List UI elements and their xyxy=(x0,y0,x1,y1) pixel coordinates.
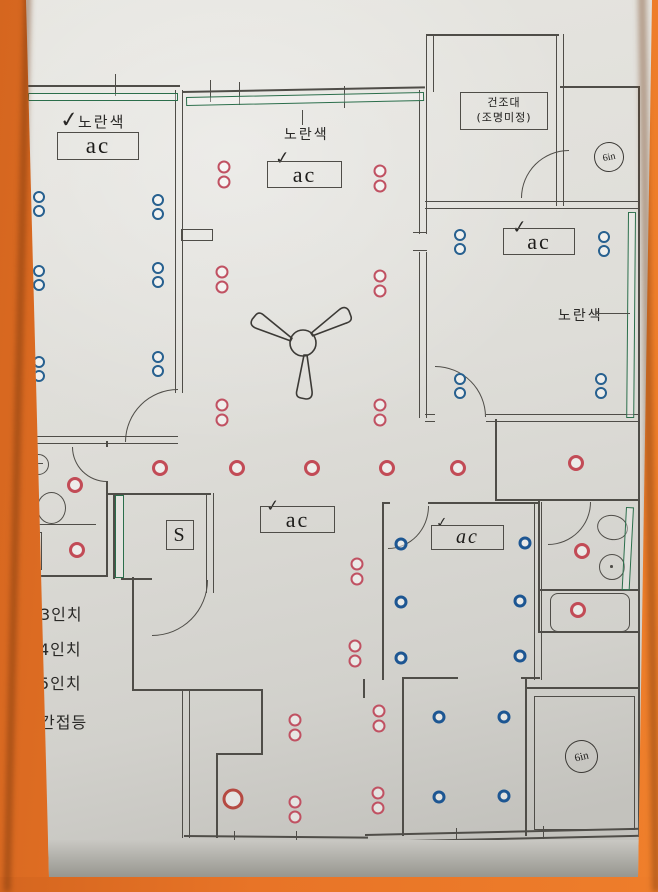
six-inch-label: 6in xyxy=(602,150,617,163)
light-5in xyxy=(568,455,584,471)
light-5in-large xyxy=(223,789,244,810)
light-4in xyxy=(373,705,386,718)
light-4in xyxy=(216,266,229,279)
indirect-light-bar xyxy=(626,212,636,418)
light-4in xyxy=(349,640,362,653)
light-3in xyxy=(433,711,446,724)
plan-line xyxy=(596,313,630,314)
plan-line xyxy=(419,90,427,234)
light-5in xyxy=(379,460,395,476)
yellow-note-label: 노란색 xyxy=(284,124,329,144)
plan-line xyxy=(37,458,38,469)
light-5in xyxy=(450,460,466,476)
plan-line xyxy=(486,414,639,422)
light-3in xyxy=(33,205,45,217)
plan-line xyxy=(125,389,178,442)
plan-line xyxy=(182,86,425,92)
light-4in xyxy=(218,175,231,188)
checkmark: ✓ xyxy=(59,107,80,134)
light-3in xyxy=(454,373,466,385)
light-4in xyxy=(372,801,385,814)
plan-line xyxy=(184,835,368,838)
plan-line xyxy=(560,86,640,88)
plan-line xyxy=(20,524,96,525)
light-5in xyxy=(304,460,320,476)
legend-4in-circle-icon xyxy=(15,641,30,656)
light-4in xyxy=(374,270,387,283)
switch-label-box: S xyxy=(166,520,194,550)
light-4in xyxy=(374,179,387,192)
plan-line xyxy=(402,677,458,679)
light-4in xyxy=(289,796,302,809)
plan-line xyxy=(525,687,640,689)
plan-line xyxy=(521,677,540,679)
plan-line xyxy=(302,110,303,125)
six-inch-light-symbol: 6in xyxy=(591,139,627,175)
plan-line xyxy=(249,306,354,399)
plan-line xyxy=(495,499,640,501)
light-4in xyxy=(289,728,302,741)
light-4in xyxy=(351,572,364,585)
light-3in xyxy=(33,191,45,203)
plan-line xyxy=(249,311,295,345)
light-3in xyxy=(395,538,408,551)
plan-line xyxy=(28,454,49,475)
light-3in xyxy=(152,276,164,288)
legend-item-4in: 4인치 xyxy=(15,636,82,660)
light-4in xyxy=(216,399,229,412)
plan-line xyxy=(550,593,630,632)
plan-line xyxy=(106,481,108,577)
plan-line xyxy=(181,229,213,241)
plan-line xyxy=(216,753,262,755)
plan-line xyxy=(152,580,208,636)
plan-line xyxy=(425,201,639,209)
light-4in xyxy=(349,654,362,667)
switch-label: S xyxy=(173,524,186,547)
paper-bottom-shadow xyxy=(0,840,658,877)
light-3in xyxy=(33,356,45,368)
plan-line xyxy=(297,355,313,399)
light-3in xyxy=(395,596,408,609)
light-4in xyxy=(373,719,386,732)
indirect-light-bar xyxy=(20,442,28,528)
light-5in xyxy=(229,460,245,476)
ac-label: ac xyxy=(456,526,479,549)
light-3in xyxy=(519,537,532,550)
light-3in xyxy=(395,652,408,665)
light-3in xyxy=(595,387,607,399)
light-3in xyxy=(598,245,610,257)
ac-label: ac xyxy=(86,133,110,159)
yellow-note-label: 노란색 xyxy=(78,111,125,132)
light-3in xyxy=(152,208,164,220)
plan-line xyxy=(428,502,538,504)
plan-line xyxy=(20,85,180,87)
plan-line xyxy=(261,689,263,755)
plan-line xyxy=(610,565,613,568)
light-3in xyxy=(433,791,446,804)
light-4in xyxy=(289,714,302,727)
light-3in xyxy=(33,279,45,291)
plan-line xyxy=(425,414,435,422)
ac-label: ac xyxy=(527,229,551,255)
light-3in xyxy=(595,373,607,385)
plan-line xyxy=(121,578,152,580)
plan-line xyxy=(495,419,497,501)
light-3in xyxy=(598,231,610,243)
light-5in xyxy=(67,477,83,493)
six-inch-label: 6in xyxy=(573,749,590,764)
plan-line xyxy=(132,577,134,691)
light-5in xyxy=(152,460,168,476)
ceiling-fan-icon xyxy=(243,283,363,403)
light-3in xyxy=(33,370,45,382)
light-4in xyxy=(374,413,387,426)
paper-left-edge-shadow xyxy=(4,0,31,892)
light-3in xyxy=(454,229,466,241)
legend-5in-label: 5인치 xyxy=(39,670,82,694)
dry-rack-label-box: 건조대 (조명미정) xyxy=(460,92,548,130)
light-3in xyxy=(152,351,164,363)
light-4in xyxy=(289,810,302,823)
light-5in xyxy=(574,543,590,559)
plan-line xyxy=(525,677,527,836)
legend-item-3in: 3인치 xyxy=(16,601,83,625)
legend-3in-label: 3인치 xyxy=(40,601,83,625)
plan-line xyxy=(32,463,43,464)
plan-line xyxy=(175,90,183,393)
ac-label-box: ac xyxy=(431,525,504,550)
plan-line xyxy=(548,502,591,545)
light-4in xyxy=(218,161,231,174)
indirect-light-bar xyxy=(186,92,424,106)
legend-indirect-label: 간접등 xyxy=(40,709,87,733)
floor-plan-paper: ✓ 노란색 ac 노란색 ✓ ac 건조대 (조명미정) 6in ✓ ac 노란… xyxy=(0,0,658,877)
light-4in xyxy=(216,413,229,426)
plan-line xyxy=(382,502,384,680)
light-3in xyxy=(498,790,511,803)
light-4in xyxy=(216,280,229,293)
light-3in xyxy=(514,650,527,663)
plan-line xyxy=(132,689,263,691)
legend-5in-circle-icon xyxy=(15,675,30,690)
plan-line xyxy=(538,499,540,633)
light-3in xyxy=(514,595,527,608)
plan-line xyxy=(413,250,427,251)
plan-line xyxy=(419,252,427,418)
light-4in xyxy=(374,399,387,412)
light-3in xyxy=(152,262,164,274)
ac-label: ac xyxy=(293,162,317,188)
light-3in xyxy=(152,194,164,206)
plan-line xyxy=(413,232,427,233)
plan-line xyxy=(426,34,434,92)
plan-line xyxy=(216,753,218,838)
light-3in xyxy=(498,711,511,724)
light-5in xyxy=(69,542,85,558)
indirect-light-bar xyxy=(28,93,178,101)
light-3in xyxy=(152,365,164,377)
plan-line xyxy=(206,493,214,593)
legend-4in-label: 4인치 xyxy=(39,636,82,660)
plan-line xyxy=(363,679,365,698)
ac-label: ac xyxy=(286,507,310,533)
ac-label-box: ac xyxy=(260,506,335,533)
legend-item-indirect: 간접등 xyxy=(16,709,87,733)
plan-line xyxy=(521,150,569,198)
plan-line xyxy=(182,689,190,838)
plan-line xyxy=(297,355,313,399)
dry-rack-label: 건조대 xyxy=(487,96,520,111)
light-4in xyxy=(351,558,364,571)
light-5in xyxy=(570,602,586,618)
ac-label-box: ac xyxy=(503,228,575,255)
light-3in xyxy=(454,243,466,255)
legend-item-5in: 5인치 xyxy=(15,670,82,694)
dry-rack-sub-label: (조명미정) xyxy=(476,111,531,126)
plan-line xyxy=(427,34,559,36)
ac-label-box: ac xyxy=(267,161,342,188)
yellow-note-label: 노란색 xyxy=(558,305,603,325)
indirect-light-bar xyxy=(115,495,124,578)
plan-line xyxy=(28,532,42,570)
legend-indirect-circle-icon xyxy=(16,714,31,729)
light-3in xyxy=(454,387,466,399)
photo-of-floor-plan: { "labels": { "yellow_note": "노란색", "ac"… xyxy=(0,0,658,877)
plan-line xyxy=(37,492,66,524)
light-4in xyxy=(374,165,387,178)
plan-line xyxy=(402,677,404,836)
light-4in xyxy=(372,787,385,800)
ac-label-box: ac xyxy=(57,132,139,160)
light-3in xyxy=(33,265,45,277)
light-4in xyxy=(374,284,387,297)
plan-line xyxy=(249,311,295,345)
legend-3in-circle-icon xyxy=(16,606,31,621)
plan-line xyxy=(20,575,108,577)
plan-line xyxy=(638,86,640,837)
